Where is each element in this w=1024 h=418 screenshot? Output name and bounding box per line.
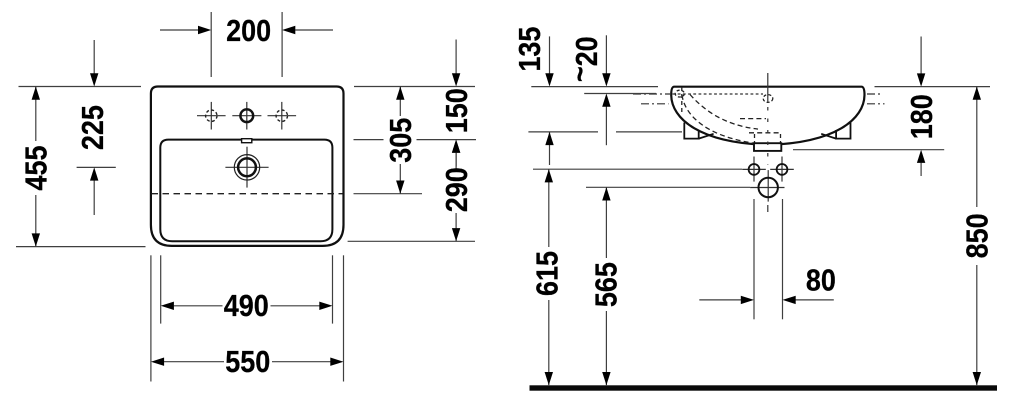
svg-text:150: 150 <box>440 88 474 133</box>
svg-text:550: 550 <box>225 345 270 379</box>
svg-text:225: 225 <box>76 105 110 150</box>
svg-text:615: 615 <box>531 251 565 296</box>
svg-text:80: 80 <box>806 264 836 298</box>
svg-text:135: 135 <box>513 27 547 72</box>
svg-text:200: 200 <box>226 14 271 48</box>
svg-text:180: 180 <box>905 94 939 139</box>
svg-text:305: 305 <box>384 118 418 163</box>
svg-text:290: 290 <box>440 167 474 212</box>
svg-text:455: 455 <box>20 146 54 191</box>
svg-text:490: 490 <box>224 290 269 324</box>
svg-text:~20: ~20 <box>563 36 604 82</box>
svg-text:850: 850 <box>961 213 995 258</box>
svg-text:565: 565 <box>590 262 624 307</box>
